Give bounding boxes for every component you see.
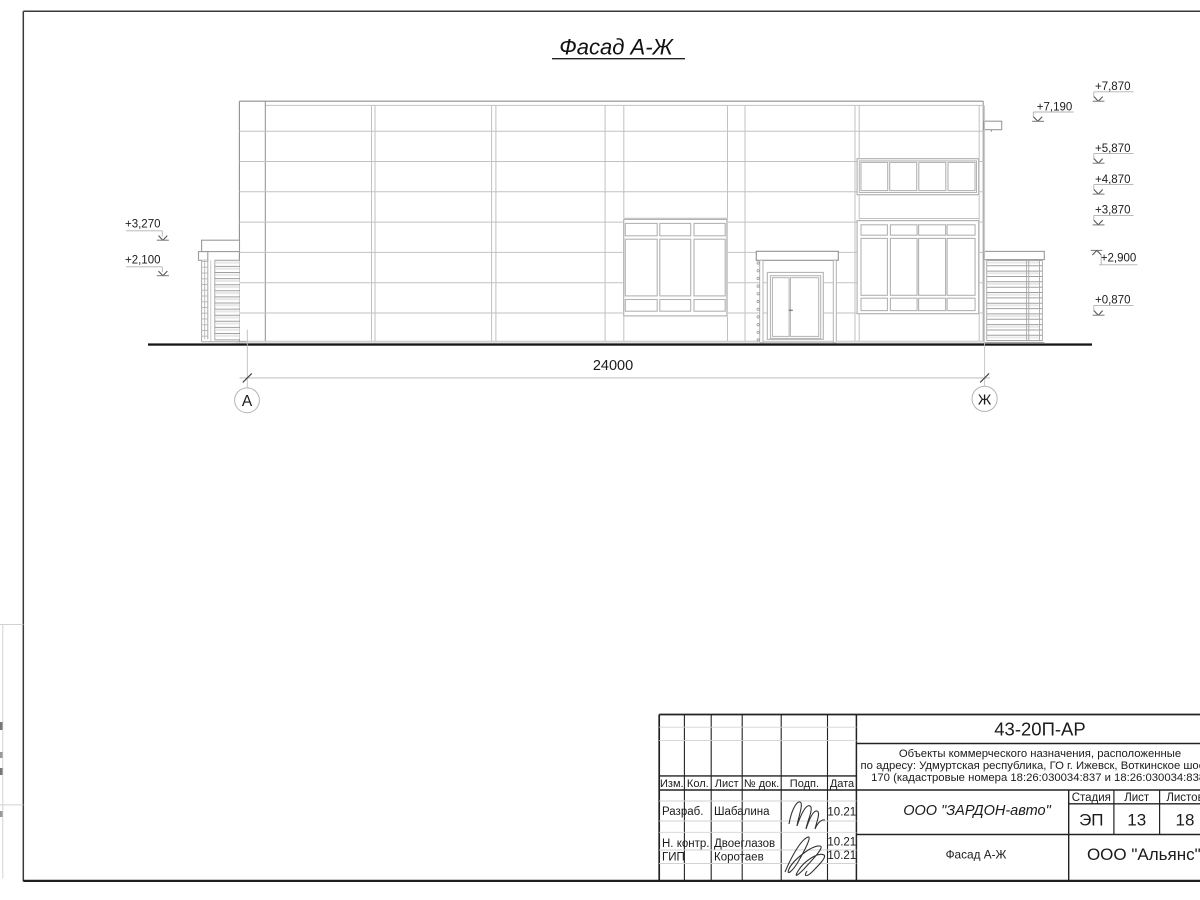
svg-text:+0,870: +0,870 [1095,295,1131,307]
svg-text:ООО "ЗАРДОН-авто": ООО "ЗАРДОН-авто" [903,803,1051,819]
svg-text:ЭП: ЭП [1079,811,1103,830]
svg-text:170 (кадастровые номера 18:26:: 170 (кадастровые номера 18:26:030034:837… [871,772,1200,784]
svg-text:Объекты коммерческого назначен: Объекты коммерческого назначения, распол… [899,748,1181,760]
svg-text:13: 13 [1127,811,1146,830]
svg-text:ООО "Альянс": ООО "Альянс" [1087,845,1200,864]
svg-text:24000: 24000 [593,358,633,374]
svg-text:10.21: 10.21 [827,836,856,848]
svg-text:+5,870: +5,870 [1095,143,1131,155]
svg-text:Листов: Листов [1166,792,1200,804]
svg-text:Лист: Лист [1124,792,1150,804]
svg-text:Изм.: Изм. [660,778,684,790]
svg-text:+7,870: +7,870 [1095,81,1131,93]
svg-text:Разраб.: Разраб. [662,806,703,818]
svg-text:Фасад А-Ж: Фасад А-Ж [946,848,1007,862]
svg-text:+2,100: +2,100 [125,255,161,267]
svg-text:+3,870: +3,870 [1095,205,1131,217]
svg-text:Подп.: Подп. [790,778,819,790]
svg-text:10.21: 10.21 [827,850,856,862]
svg-text:№ док.: № док. [744,778,779,790]
svg-text:Лист: Лист [715,778,739,790]
svg-text:Кол.: Кол. [687,778,709,790]
svg-text:ГИП: ГИП [662,852,685,864]
svg-text:Фасад А-Ж: Фасад А-Ж [559,35,674,60]
svg-text:Стадия: Стадия [1072,792,1111,804]
svg-text:+4,870: +4,870 [1095,174,1131,186]
svg-text:10.21: 10.21 [827,806,856,818]
svg-text:18: 18 [1176,811,1195,830]
svg-text:Шабалина: Шабалина [714,806,770,818]
svg-text:Ж: Ж [978,393,992,409]
svg-text:Н. контр.: Н. контр. [662,838,709,850]
svg-text:+3,270: +3,270 [125,219,161,231]
svg-text:А: А [242,393,253,410]
svg-text:по адресу: Удмуртская республи: по адресу: Удмуртская республика, ГО г. … [861,760,1200,772]
svg-text:Коротаев: Коротаев [714,852,764,864]
svg-text:Двоеглазов: Двоеглазов [714,838,775,850]
svg-text:43-20П-АР: 43-20П-АР [994,719,1085,740]
svg-text:+2,900: +2,900 [1101,253,1137,265]
svg-text:Дата: Дата [830,778,855,790]
